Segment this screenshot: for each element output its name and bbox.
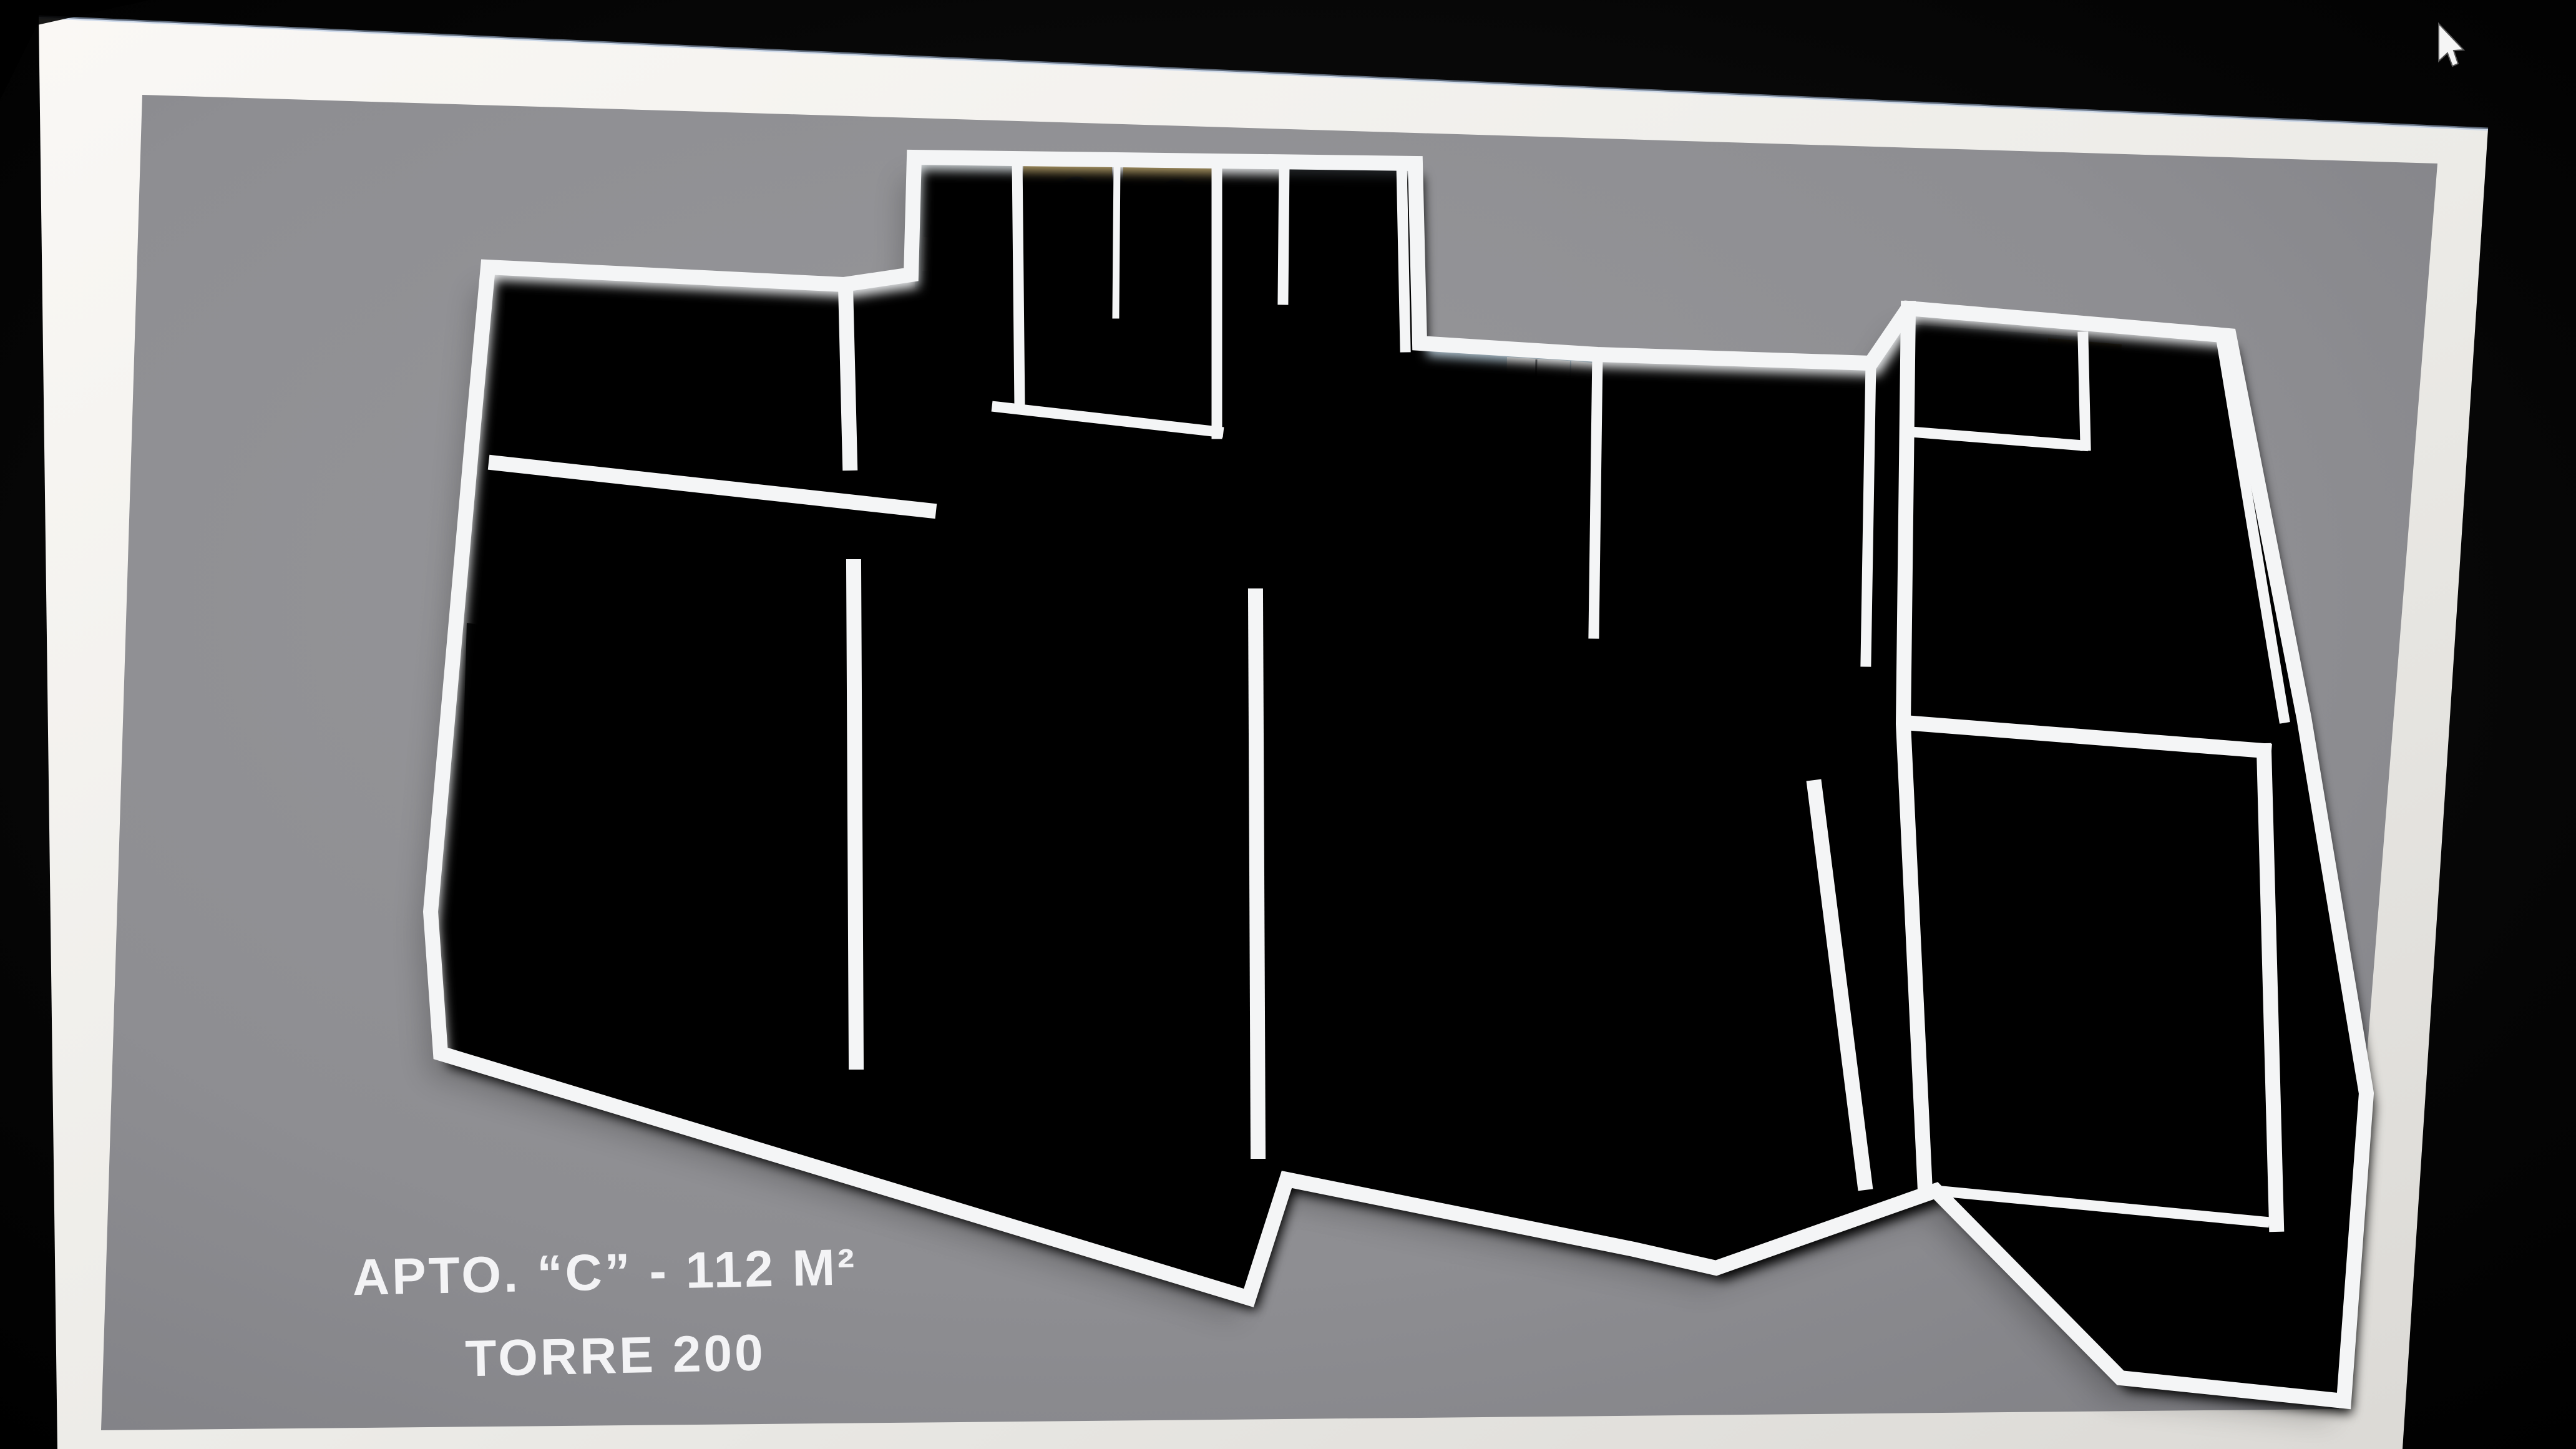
caption-line2: TORRE 200: [465, 1324, 766, 1387]
wall-bedroom2-living: [1256, 596, 1258, 1151]
wall-closet-east: [846, 286, 850, 463]
caption-line1: APTO. “C” - 112 M²: [352, 1239, 857, 1306]
stall-divider: [1116, 163, 1117, 315]
photo-of-floorplan-slide: APTO. “C” - 112 M² TORRE 200: [0, 0, 2576, 1449]
wall-kitchen-column: [1594, 354, 1598, 633]
wall-kitchen-east: [1866, 363, 1871, 661]
wall-master-bedroom2: [854, 567, 856, 1062]
